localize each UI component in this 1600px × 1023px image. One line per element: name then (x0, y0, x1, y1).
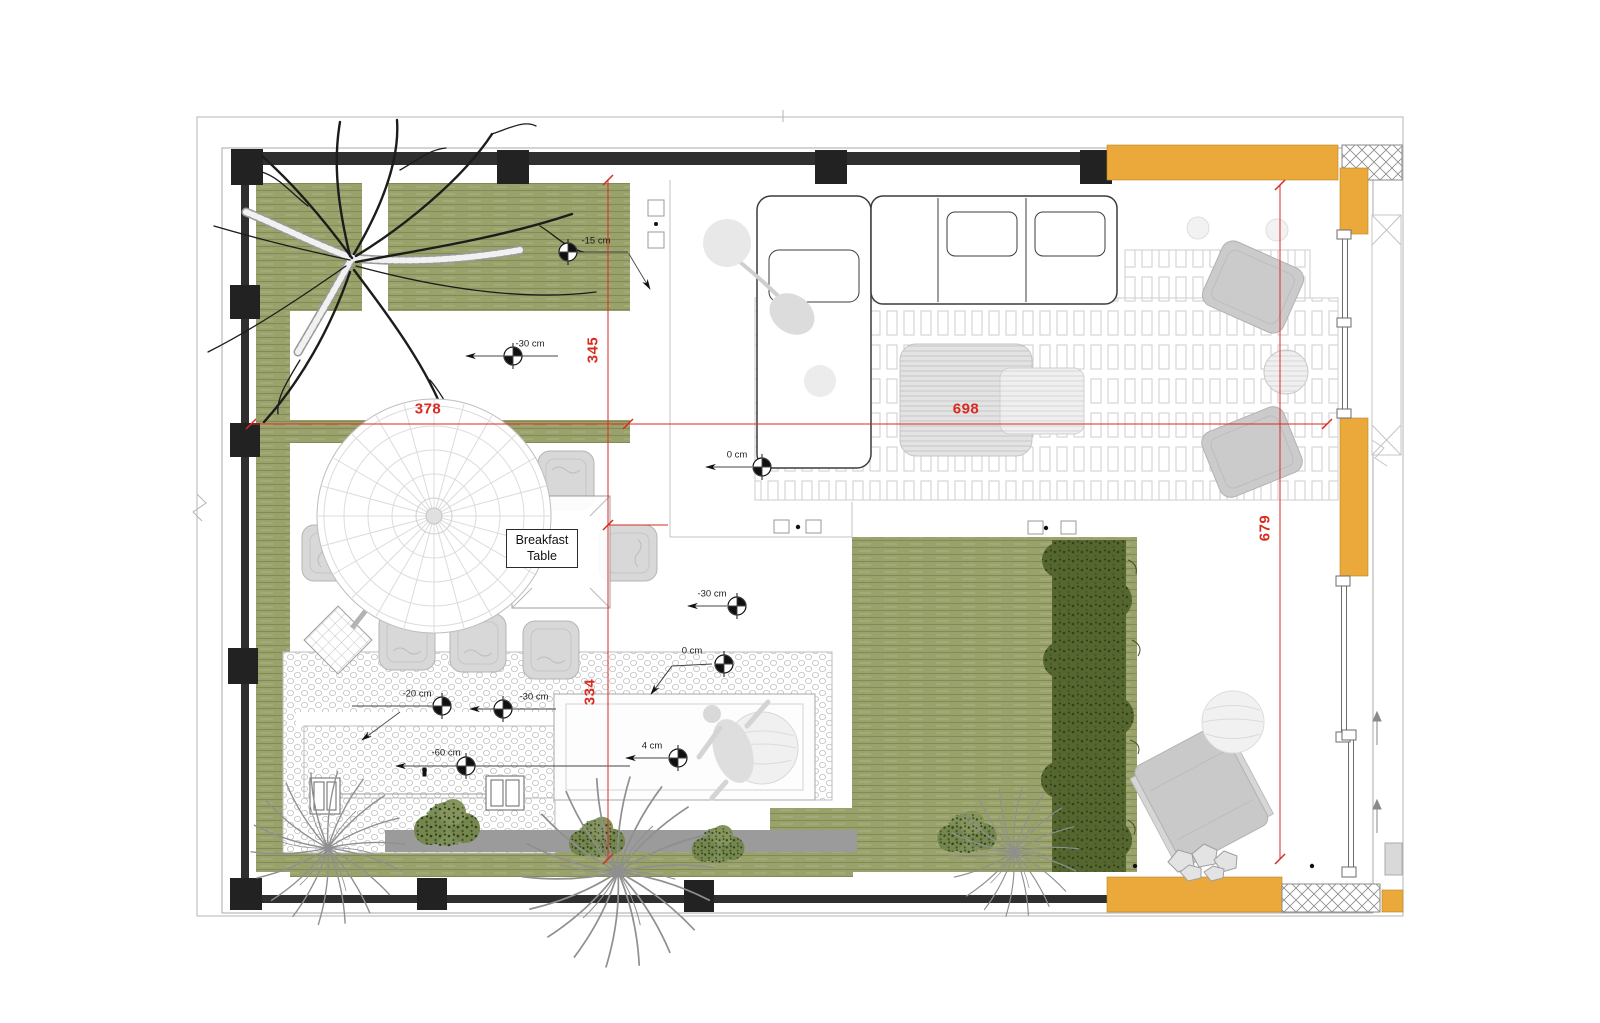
small-planter (1187, 217, 1209, 239)
pebble-terrace (283, 652, 832, 853)
water-fixture-left (310, 778, 340, 814)
side-table-round (1264, 350, 1308, 394)
level-label-4: 0 cm (682, 646, 703, 657)
slide-direction-arrows (1373, 712, 1381, 833)
small-planter (1266, 219, 1288, 241)
wall-yellow-top (1107, 145, 1338, 180)
dim-living-width: 698 (953, 401, 980, 418)
exercise-ball (1202, 691, 1264, 753)
wall-top-beam (241, 152, 1107, 165)
wall-left-beam (241, 152, 249, 902)
hedge (1041, 540, 1140, 872)
level-label-3: -30 cm (697, 589, 726, 600)
window-fixed (1337, 230, 1351, 418)
wall-bottom-beam (241, 895, 1107, 903)
level-label-8: -60 cm (431, 748, 460, 759)
wall-hatch-bottom (1282, 884, 1380, 912)
outside-planter (1372, 215, 1401, 466)
level-label-5: 4 cm (642, 741, 663, 752)
wall-yellow-bottom (1107, 877, 1282, 912)
room-label-line1: Breakfast (507, 532, 577, 548)
dim-terrace-width: 378 (415, 401, 442, 418)
level-label-7: -30 cm (519, 692, 548, 703)
level-label-0: -15 cm (581, 236, 610, 247)
wall-yellow-pier-upper (1340, 168, 1368, 234)
valve-mark (422, 768, 427, 776)
dim-terrace-height-upper: 345 (585, 337, 602, 364)
level-label-1: -30 cm (515, 339, 544, 350)
side-stool (804, 365, 836, 397)
outside-block (1385, 843, 1402, 875)
floor-plan-canvas: Breakfast Table 378 698 345 334 679 -15 … (0, 0, 1600, 1023)
room-label-line2: Table (507, 548, 577, 564)
water-fixture-right (486, 776, 524, 810)
level-label-2: 0 cm (727, 450, 748, 461)
wall-yellow-pier-mid (1340, 418, 1368, 576)
room-label-breakfast-table: Breakfast Table (506, 529, 578, 568)
dim-terrace-height-lower: 334 (582, 679, 599, 706)
floor-plan-drawing (0, 0, 1600, 1023)
sliding-door (1336, 576, 1356, 877)
level-label-6: -20 cm (402, 689, 431, 700)
dim-living-height: 679 (1257, 515, 1274, 542)
parasol (317, 399, 551, 633)
